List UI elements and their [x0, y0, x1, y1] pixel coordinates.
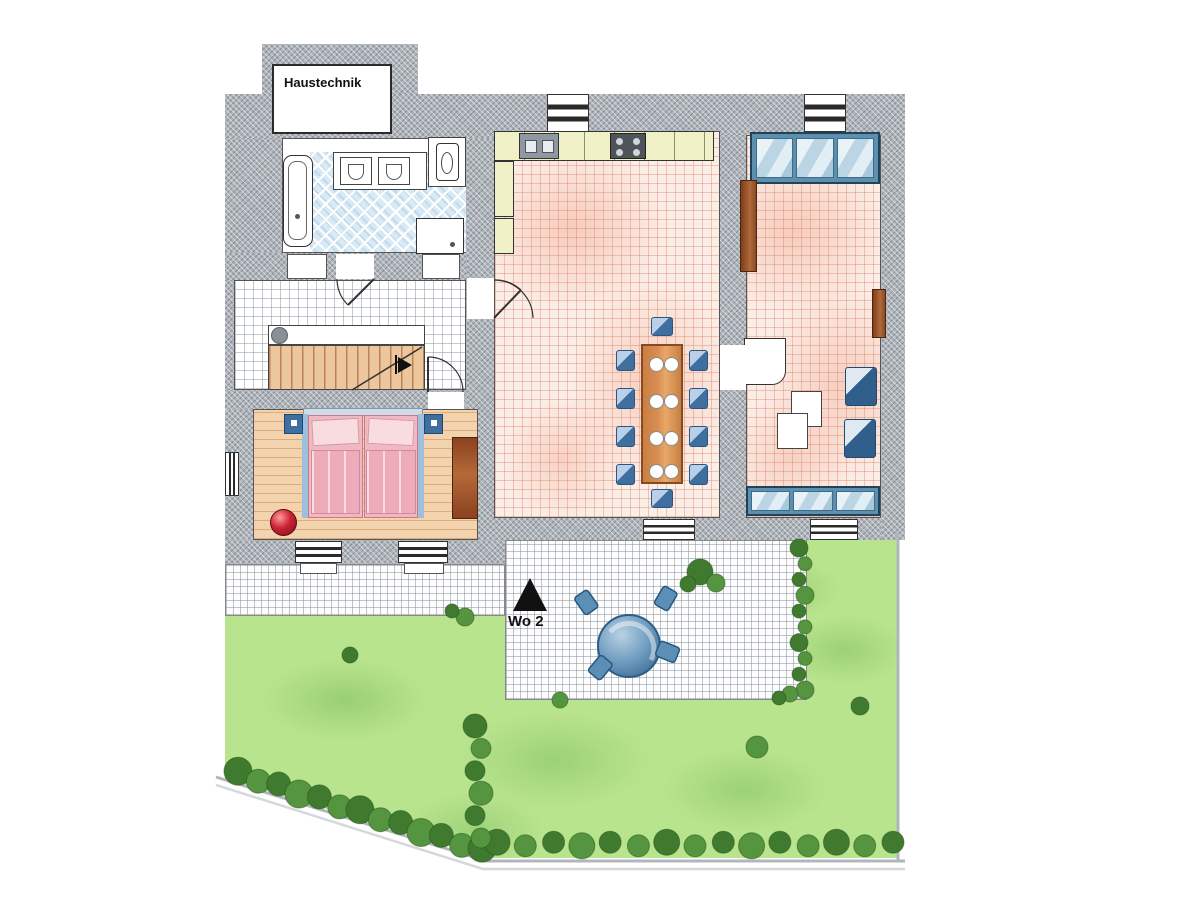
floor-plan: Haustechnik — [0, 0, 1200, 900]
washbasin-1 — [340, 157, 372, 185]
room-kitchen-dining — [494, 131, 720, 518]
washbasin-2-bowl — [386, 164, 402, 180]
wall-south-west — [225, 540, 505, 564]
dining-chair — [689, 426, 708, 447]
terrace-door-living — [810, 519, 858, 540]
toilet-bowl — [441, 152, 453, 174]
washbasin-1-bowl — [348, 164, 364, 180]
window-north-living — [804, 94, 846, 132]
plate — [649, 394, 664, 409]
bathtub-drain — [295, 214, 300, 219]
dining-chair — [616, 388, 635, 409]
window-sill-2 — [404, 563, 444, 574]
wall-west-hall — [225, 280, 234, 390]
window-bedroom-2 — [398, 541, 448, 563]
kitchen-door-gap — [467, 278, 494, 319]
window-bedroom-1 — [295, 541, 342, 563]
duvet-left — [311, 450, 360, 514]
toilet — [436, 143, 459, 181]
washbasin-2 — [378, 157, 410, 185]
shower — [416, 218, 464, 254]
plate — [649, 431, 664, 446]
plate — [664, 431, 679, 446]
shower-drain — [450, 242, 455, 247]
kitchen-cabinet-lower — [494, 218, 514, 254]
room-living — [746, 135, 881, 518]
dining-chair — [689, 464, 708, 485]
wardrobe — [452, 437, 478, 519]
location-marker-triangle — [513, 578, 547, 611]
stove-unit — [610, 133, 646, 159]
dining-chair — [651, 317, 673, 336]
bathtub — [283, 155, 313, 247]
room-haustechnik: Haustechnik — [272, 64, 392, 134]
window-north-kitchen — [547, 94, 589, 132]
kitchen-sink-unit — [519, 133, 559, 159]
sofa-north — [750, 132, 880, 184]
haustechnik-label: Haustechnik — [284, 75, 390, 90]
plate — [649, 357, 664, 372]
bathtub-basin — [288, 161, 307, 240]
plate — [664, 464, 679, 479]
shelf-east — [872, 289, 886, 338]
burner-3 — [616, 149, 623, 156]
burner-4 — [633, 149, 640, 156]
window-sill-1 — [300, 563, 337, 574]
terrace-door-kitchen — [643, 519, 695, 540]
burner-2 — [633, 138, 640, 145]
shelf-west — [740, 180, 757, 272]
dining-chair — [689, 388, 708, 409]
nightstand-left — [284, 414, 303, 434]
stair-newel-post — [271, 327, 288, 344]
nightstand-right — [424, 414, 443, 434]
nightstand-right-knob — [431, 420, 437, 426]
wall-east — [881, 138, 905, 540]
terrace-strip-south — [225, 564, 505, 616]
location-marker-label: Wo 2 — [508, 613, 544, 630]
red-ball — [270, 509, 297, 536]
dining-chair — [651, 489, 673, 508]
duvet-right — [366, 450, 416, 514]
window-bedroom-west — [225, 452, 239, 496]
staircase-steps — [268, 345, 425, 390]
wall-west-bathroom — [225, 138, 282, 254]
bedroom-door-gap — [428, 392, 464, 409]
dining-chair — [616, 350, 635, 371]
kitchen-cabinet-upper — [494, 161, 514, 217]
sink-bowl-2 — [542, 140, 554, 153]
plate — [664, 394, 679, 409]
plate — [664, 357, 679, 372]
dining-chair — [616, 464, 635, 485]
sofa-cushion — [837, 138, 874, 178]
sofa-south — [746, 486, 880, 516]
sofa-cushion — [751, 491, 790, 511]
sofa-cushion — [793, 491, 832, 511]
dining-chair — [689, 350, 708, 371]
passage-kitchen-living — [720, 345, 746, 390]
armchair-2 — [844, 419, 876, 458]
nightstand-left-knob — [291, 420, 297, 426]
sink-bowl-1 — [525, 140, 537, 153]
hall-opening-west — [287, 254, 327, 279]
plate — [649, 464, 664, 479]
bathroom-door-gap — [336, 254, 374, 279]
burner-1 — [616, 138, 623, 145]
dining-chair — [616, 426, 635, 447]
hall-opening-east — [422, 254, 460, 279]
stair-landing — [268, 325, 425, 345]
armchair-1 — [845, 367, 877, 406]
terrace-main — [505, 540, 807, 700]
sofa-cushion — [756, 138, 793, 178]
side-table-2 — [777, 413, 808, 449]
sofa-cushion — [796, 138, 833, 178]
pillow-right — [367, 418, 414, 446]
sofa-cushion — [836, 491, 875, 511]
pillow-left — [311, 418, 359, 446]
fireplace-unit — [744, 338, 786, 385]
